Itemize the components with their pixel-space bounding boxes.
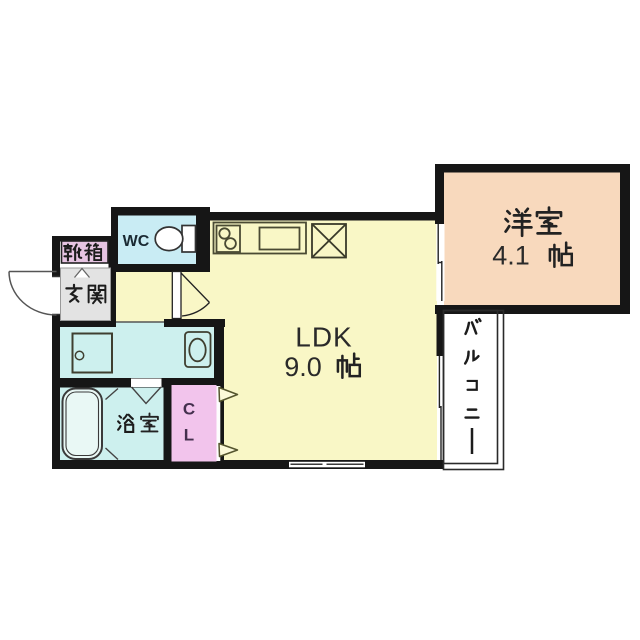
svg-text:LDK: LDK <box>295 322 352 353</box>
svg-text:9.0: 9.0 <box>284 352 322 382</box>
svg-text:WC: WC <box>123 233 150 250</box>
svg-text:4.1: 4.1 <box>492 241 530 271</box>
svg-text:C: C <box>183 400 195 419</box>
svg-text:L: L <box>184 426 194 445</box>
